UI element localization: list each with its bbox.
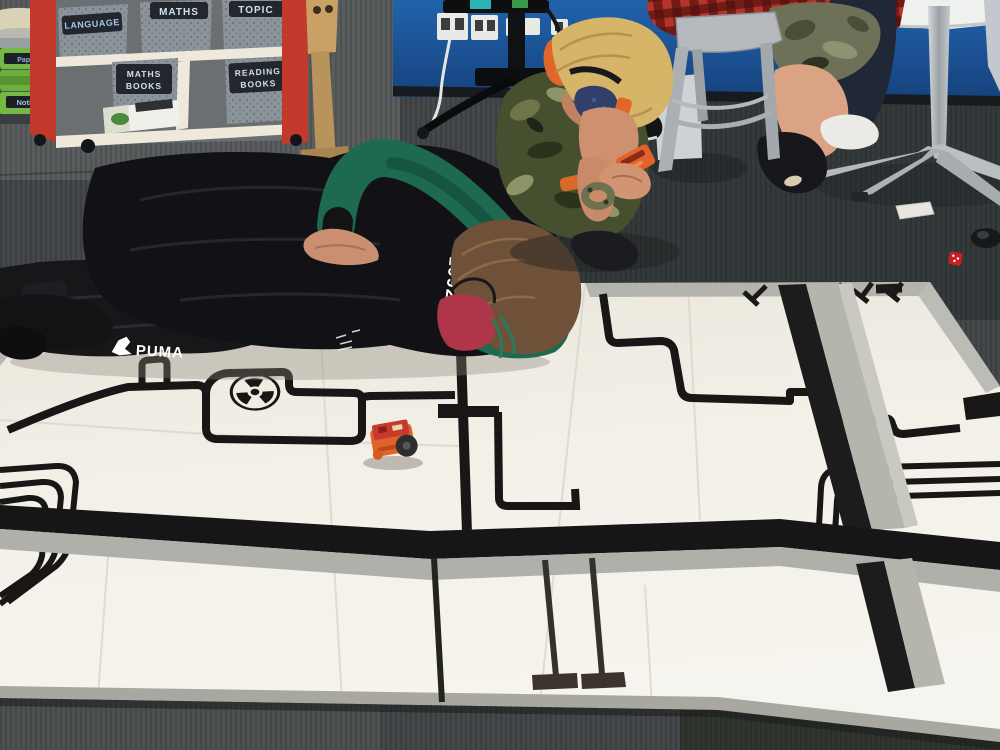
shelf-red-panel-left [30,0,56,142]
green-cable [512,0,528,8]
scrunchie-speckle [604,200,609,205]
red-die [948,251,963,266]
caster-wheel-icon [81,139,95,153]
teal-connector [470,0,491,9]
bin-label-line1: MATHS [127,69,162,79]
caster-wheel-icon [290,134,302,146]
socket-icon [487,20,495,31]
easel-board [306,0,338,54]
socket-icon [455,18,464,30]
bin-topic: TOPIC [222,0,288,52]
pants-brand-text: PUMA [135,342,184,361]
caster-wheel-icon [34,134,46,146]
photo-canvas: Paper Notices LANGUAGE MATHS [0,0,1000,750]
bin-language: LANGUAGE [58,4,128,60]
t-track-pad [581,672,626,689]
branch-block [438,404,462,418]
shelf-red-panel-right [282,0,308,144]
bin-label: MATHS [159,7,199,18]
bin-label: TOPIC [238,5,273,16]
caster-highlight [977,231,989,239]
table-foot-pad [852,192,868,201]
t-track-pad [532,673,578,690]
classroom-photo: Paper Notices LANGUAGE MATHS [0,0,1000,750]
easel-hole-icon [313,6,321,14]
socket-icon [441,18,450,30]
socket-icon [475,20,483,31]
bin-reading-books: READING BOOKS [225,56,290,124]
robot-shadow [363,456,423,470]
storage-shelf: LANGUAGE MATHS TOPIC MATHS BOOKS READING… [30,0,308,153]
trolley-top-shelf [443,0,549,13]
paper-brand-icon [111,113,129,125]
bin-maths: MATHS [140,0,212,55]
mask-pattern-dot [592,98,596,102]
bin-label-line2: BOOKS [126,81,162,91]
caster-wheel-icon [417,127,429,139]
bin-label-line2: BOOKS [240,78,277,90]
easel-hole-icon [325,5,333,13]
scrunchie-speckle [588,188,593,193]
outlet-single-2 [524,18,540,35]
room-exit-line [362,395,455,397]
